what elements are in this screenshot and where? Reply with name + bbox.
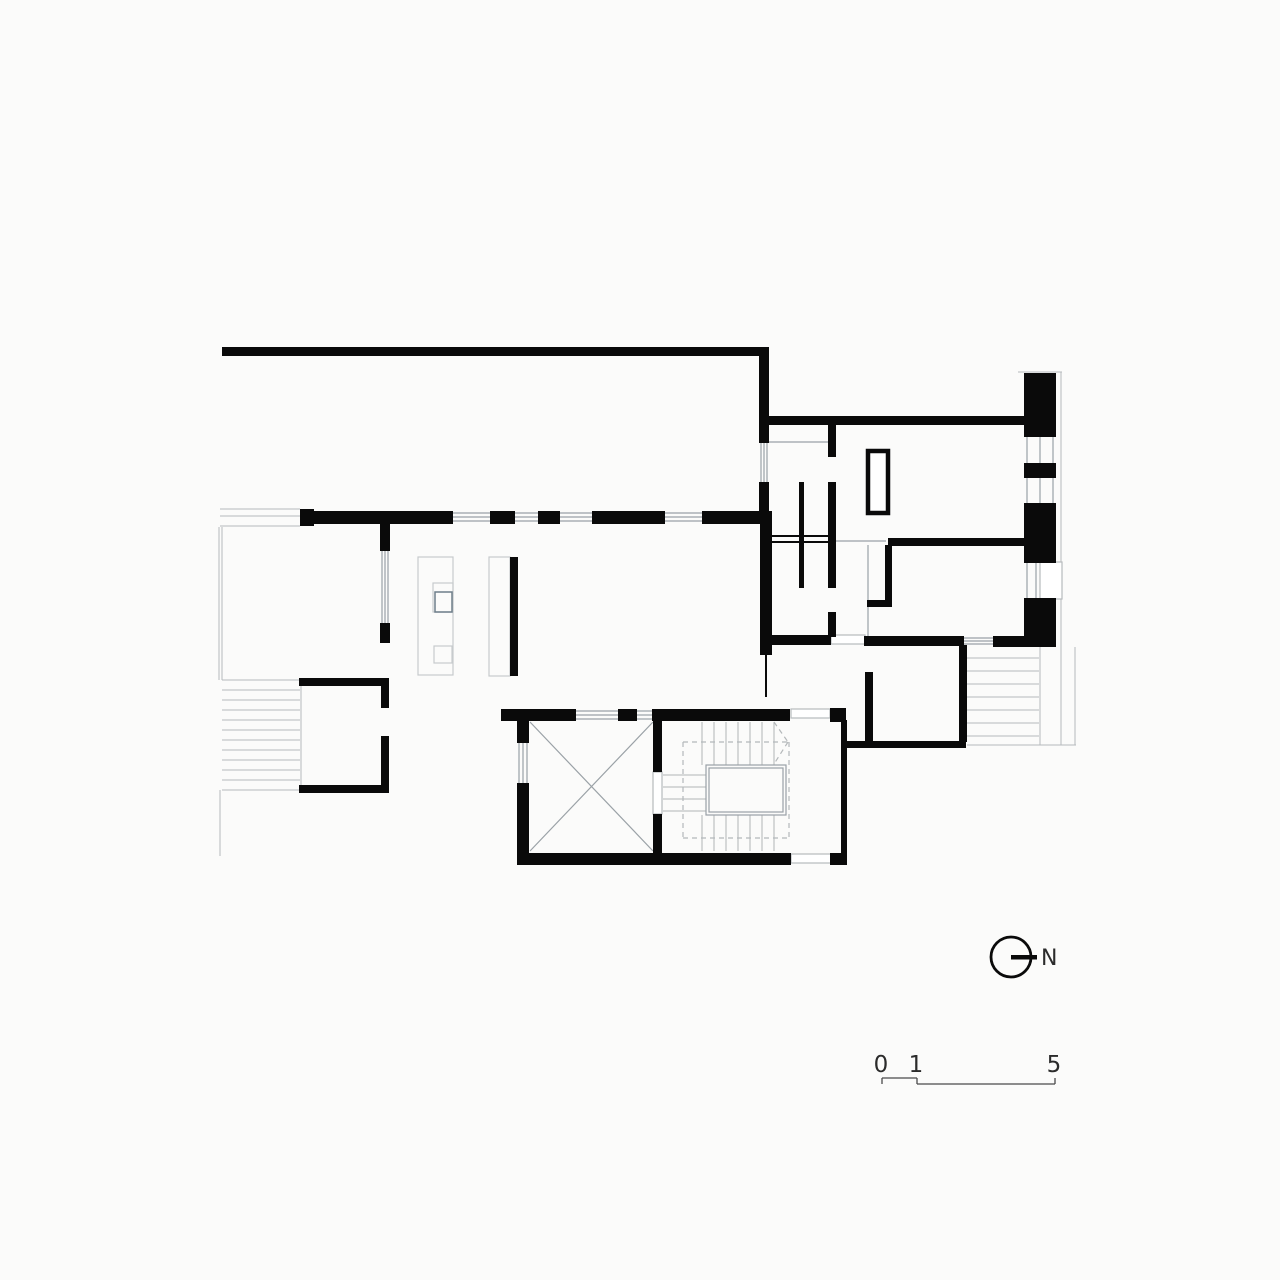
wall-segment — [501, 709, 576, 721]
floor-plan-svg: N 0 1 5 — [0, 0, 1280, 1280]
door-opening — [1040, 562, 1062, 599]
wall-segment — [830, 708, 846, 722]
wall-segment — [772, 635, 831, 645]
wall-segment — [222, 347, 769, 356]
stairwell-outline — [709, 768, 783, 812]
sink-inner-outline-layer — [435, 592, 452, 612]
scale-bar: 0 1 5 — [874, 1052, 1062, 1084]
door-opening — [791, 854, 831, 863]
wall-segment — [828, 482, 836, 588]
wall-segment — [1024, 503, 1056, 563]
stair-dashed-line — [774, 742, 788, 764]
sink-inner-outline — [435, 592, 452, 612]
stair-tread-line-layer — [663, 722, 774, 851]
scale-label-0: 0 — [874, 1052, 889, 1078]
terrace-deck-line-layer — [219, 372, 1076, 856]
wall-segment — [538, 511, 560, 524]
wall-segment — [865, 672, 873, 742]
wall-segment-layer — [222, 347, 1056, 865]
stairwell-outline — [706, 765, 786, 815]
furniture-outline — [418, 557, 453, 675]
north-arrow: N — [991, 937, 1058, 977]
wall-segment — [618, 709, 637, 721]
wall-segment — [1024, 598, 1056, 647]
wall-segment — [653, 709, 662, 772]
wall-segment — [702, 511, 768, 524]
plan-geometry — [219, 347, 1076, 865]
wall-segment — [888, 538, 1024, 546]
furniture-outline — [433, 583, 453, 612]
wall-segment — [769, 416, 1024, 425]
furniture-outline-layer — [418, 557, 510, 676]
wall-segment — [759, 347, 769, 424]
north-label: N — [1041, 946, 1058, 971]
partition-line-layer — [766, 536, 828, 697]
void-cross-line-layer — [530, 722, 653, 851]
wall-segment — [592, 511, 665, 524]
wall-segment — [867, 600, 892, 607]
wall-segment — [299, 678, 389, 686]
scale-label-5: 5 — [1047, 1052, 1062, 1078]
wall-segment — [300, 511, 453, 524]
wall-segment — [864, 636, 964, 646]
wall-segment — [993, 636, 1024, 647]
floor-plan-page: N 0 1 5 — [0, 0, 1280, 1280]
wall-segment — [841, 741, 966, 748]
wall-segment — [959, 645, 967, 742]
door-opening — [653, 772, 662, 814]
wall-segment — [381, 678, 389, 708]
wall-segment — [517, 709, 529, 743]
door-opening — [831, 635, 865, 644]
wall-segment — [299, 785, 389, 793]
wall-segment — [841, 720, 847, 865]
scale-label-1: 1 — [909, 1052, 924, 1078]
stair-dashed-line-layer — [683, 722, 789, 838]
wall-segment — [380, 623, 390, 643]
wardrobe-outline-layer — [868, 451, 888, 513]
wall-segment — [517, 853, 791, 865]
wall-segment — [760, 511, 772, 655]
wall-segment — [1024, 463, 1056, 478]
wall-segment — [830, 853, 847, 865]
wall-segment — [510, 557, 518, 676]
wall-segment — [517, 783, 529, 865]
furniture-outline — [434, 646, 452, 663]
wall-segment — [828, 424, 836, 457]
door-opening — [791, 709, 830, 718]
wall-segment — [759, 482, 769, 511]
stair-dashed-line — [774, 722, 788, 742]
wall-segment — [381, 736, 389, 793]
wall-segment — [1024, 373, 1056, 437]
furniture-outline — [489, 557, 510, 676]
wall-segment — [652, 709, 790, 721]
scale-bar-lines — [882, 1078, 1055, 1084]
wardrobe-outline — [868, 451, 888, 513]
window-pane-line-layer — [382, 437, 1053, 783]
stairwell-outline-layer — [706, 765, 786, 815]
wall-segment — [759, 424, 769, 443]
wall-segment — [885, 545, 892, 607]
wall-segment — [380, 511, 390, 551]
north-arrow-bar — [1011, 955, 1037, 960]
wall-segment — [490, 511, 515, 524]
wall-segment — [828, 612, 836, 637]
